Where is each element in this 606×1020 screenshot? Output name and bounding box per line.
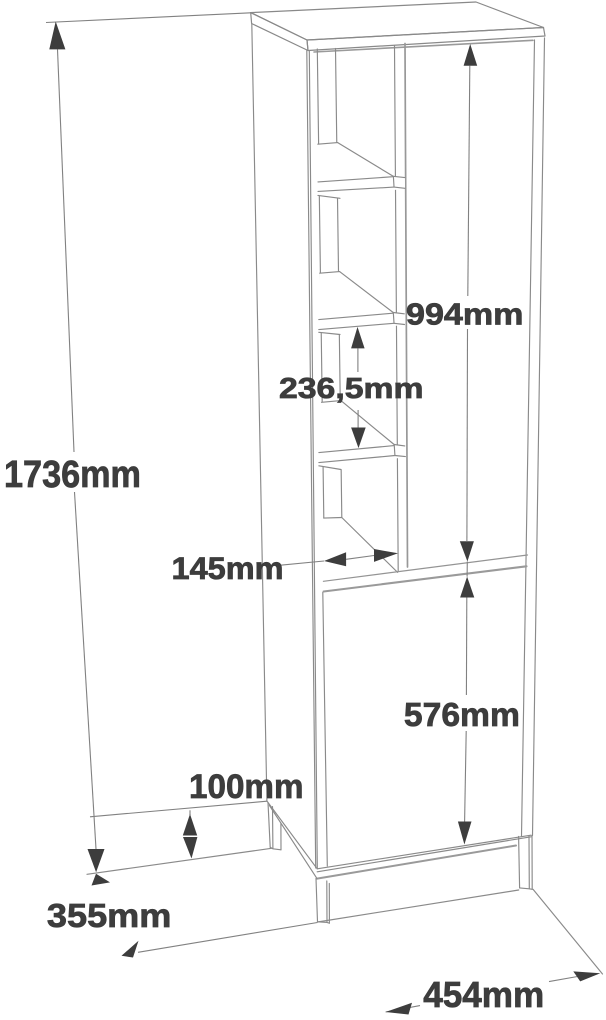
svg-text:994mm: 994mm [406, 297, 524, 332]
svg-text:100mm: 100mm [189, 768, 304, 806]
svg-text:145mm: 145mm [172, 551, 284, 586]
svg-text:355mm: 355mm [47, 897, 171, 935]
svg-text:236,5mm: 236,5mm [279, 373, 424, 405]
svg-text:454mm: 454mm [423, 975, 544, 1015]
svg-text:576mm: 576mm [404, 697, 520, 734]
svg-text:1736mm: 1736mm [4, 454, 141, 496]
